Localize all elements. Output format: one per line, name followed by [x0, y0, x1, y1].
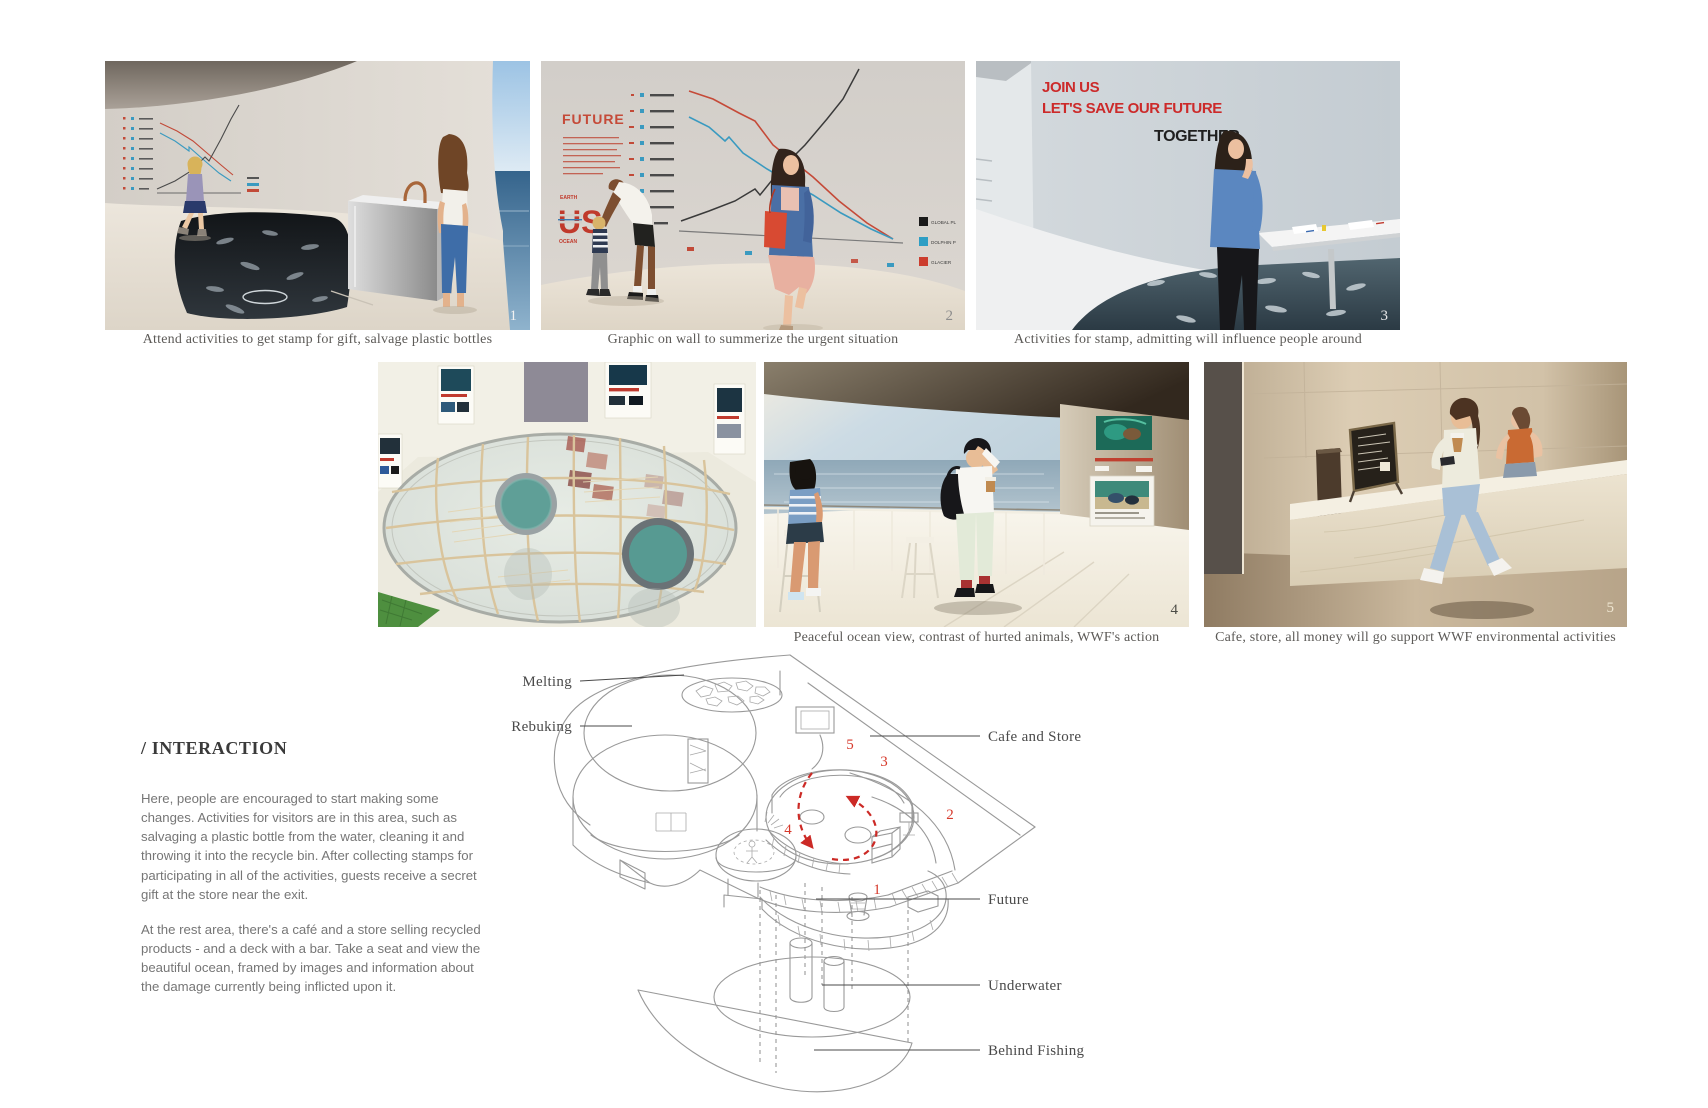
- caption-5: Cafe, store, all money will go support W…: [1204, 630, 1627, 646]
- stop-3: 3: [880, 754, 888, 770]
- render-activity-area-art: 1: [105, 61, 530, 330]
- wall-line2: LET'S SAVE OUR FUTURE: [1042, 100, 1222, 117]
- melting-room: [584, 671, 782, 791]
- caption-1: Attend activities to get stamp for gift,…: [105, 332, 530, 348]
- photo-model-art: [378, 362, 756, 627]
- behind-fishing-volume: [638, 990, 912, 1092]
- image-number: 5: [1607, 600, 1615, 616]
- red-caption-strip: [1095, 458, 1153, 461]
- section-paragraph-2: At the rest area, there's a café and a s…: [141, 920, 489, 997]
- building-shell: [554, 655, 1035, 913]
- circulation-arrows: [799, 773, 877, 860]
- wall-line1: JOIN US: [1042, 79, 1100, 96]
- svg-text:EARTH: EARTH: [560, 195, 578, 201]
- wall-title: FUTURE: [562, 111, 625, 127]
- stop-4: 4: [784, 822, 792, 838]
- svg-text:GLOBAL PL: GLOBAL PL: [931, 220, 957, 225]
- underwater-volume: [714, 938, 910, 1037]
- axonometric-diagram: 5 3 2 4 1: [460, 645, 1160, 1108]
- projection-lines: [760, 883, 908, 1073]
- caption-3: Activities for stamp, admitting will inf…: [976, 332, 1400, 348]
- label-rebuking: Rebuking: [511, 719, 572, 735]
- caption-4: Peaceful ocean view, contrast of hurted …: [764, 630, 1189, 646]
- rebuking-room: [573, 707, 834, 859]
- presentation-board: 1 FUTURE EARTH US: [0, 0, 1708, 1108]
- image-number: 4: [1171, 602, 1179, 618]
- svg-text:OCEAN: OCEAN: [559, 239, 577, 245]
- label-underwater: Underwater: [988, 978, 1062, 994]
- image-number: 3: [1381, 308, 1389, 324]
- caption-2: Graphic on wall to summerize the urgent …: [541, 332, 965, 348]
- render-ocean-deck: 4: [764, 362, 1189, 627]
- wwf-poster: [1090, 476, 1154, 526]
- label-cafe-and-store: Cafe and Store: [988, 729, 1081, 745]
- dark-doorway: [1204, 362, 1242, 574]
- diagram-labels: Melting Rebuking Cafe and Store Future U…: [511, 674, 1084, 1059]
- render-activity-area: 1: [105, 61, 530, 330]
- label-behind-fishing: Behind Fishing: [988, 1043, 1084, 1059]
- render-cafe-art: 5: [1204, 362, 1627, 627]
- label-melting: Melting: [522, 674, 572, 690]
- svg-text:GLACIER: GLACIER: [931, 260, 952, 265]
- interaction-section: / INTERACTION Here, people are encourage…: [141, 738, 489, 1012]
- plastic-pool: [175, 212, 373, 319]
- stop-2: 2: [946, 807, 954, 823]
- render-wall-graphic: FUTURE EARTH US OCEAN: [541, 61, 965, 330]
- render-join-us: JOIN US LET'S SAVE OUR FUTURE TOGETHER 3: [976, 61, 1400, 330]
- render-cafe: 5: [1204, 362, 1627, 627]
- doorway: [524, 362, 588, 422]
- render-wall-graphic-art: FUTURE EARTH US OCEAN: [541, 61, 965, 330]
- section-heading: / INTERACTION: [141, 738, 489, 759]
- image-number: 2: [946, 308, 954, 324]
- stop-1: 1: [873, 882, 881, 898]
- svg-text:DOLPHIN P: DOLPHIN P: [931, 240, 956, 245]
- render-join-us-art: JOIN US LET'S SAVE OUR FUTURE TOGETHER 3: [976, 61, 1400, 330]
- turtle-picture: [1096, 416, 1152, 450]
- stop-5: 5: [846, 737, 854, 753]
- label-future: Future: [988, 892, 1029, 908]
- section-paragraph-1: Here, people are encouraged to start mak…: [141, 789, 489, 904]
- render-ocean-deck-art: 4: [764, 362, 1189, 627]
- image-number: 1: [510, 308, 518, 324]
- future-platform: [760, 827, 948, 951]
- cafe-area: [850, 773, 955, 870]
- axonometric-diagram-art: 5 3 2 4 1: [460, 645, 1160, 1108]
- photo-model-glass-floor: [378, 362, 756, 627]
